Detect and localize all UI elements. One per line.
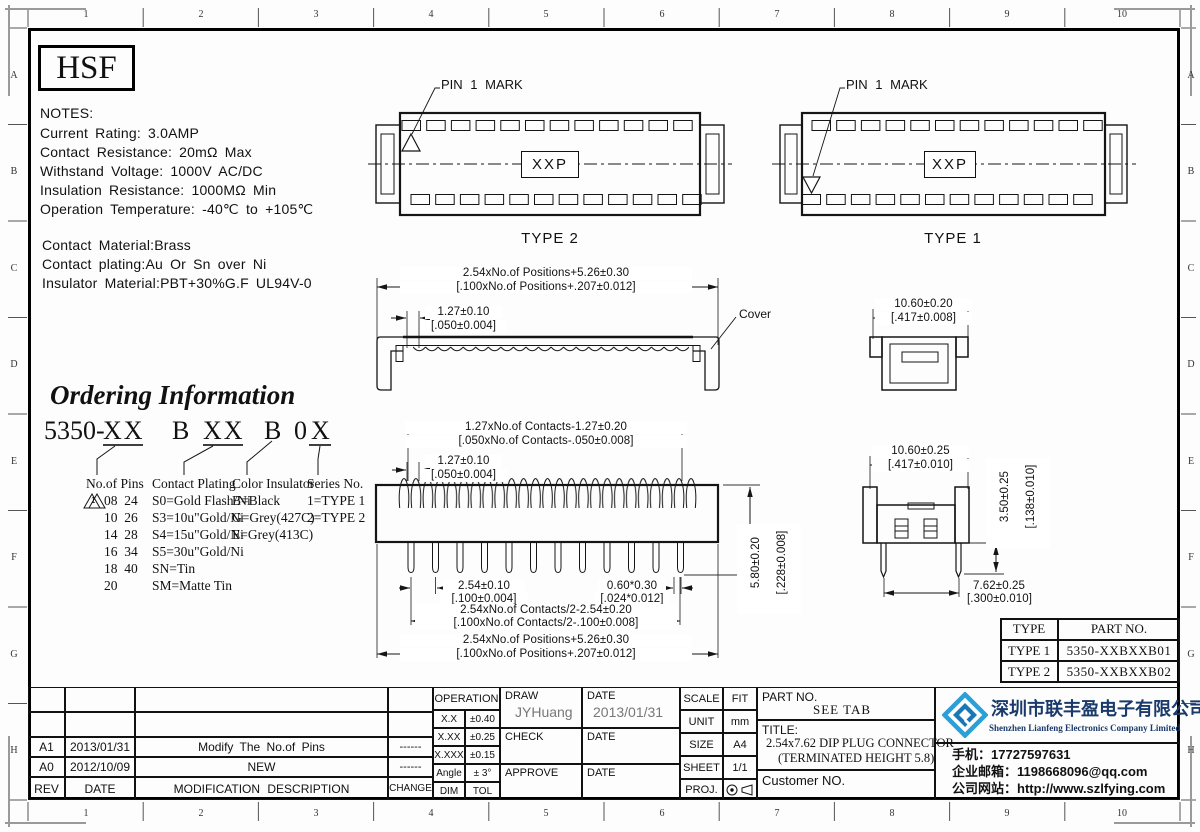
dim-cover-width-mm: 10.60±0.20 [875,298,972,311]
sheet-label: SHEET [680,756,723,779]
dim-total-in: [.100xNo.of Positions+.207±0.012] [400,648,692,661]
series-option: 2=TYPE 2 [307,510,365,525]
ruler-row-label: B [1180,166,1200,177]
partno-label: PART NO. [762,690,817,704]
part-code-seg-pins: XX [103,416,145,445]
company-name-en: Shenzhen Lianfeng Electronics Company Li… [989,723,1180,733]
dim-contacts-in: [.050xNo.of Contacts-.050±0.008] [405,435,687,448]
size-label: SIZE [680,733,723,756]
dim-height-mm: 5.80±0.20 [750,537,762,588]
ruler-col-label: 8 [881,9,903,20]
date-label: DATE [587,731,616,743]
dim-pitch-small-mm: 1.27±0.10 [425,455,502,468]
ruler-row-label: H [1180,745,1200,756]
unit-value: mm [723,710,757,733]
rev-date: 2012/10/09 [65,757,135,777]
company-name-cn: 深圳市联丰盈电子有限公司 [991,700,1200,720]
check-label: CHECK [505,731,544,743]
dim-contacts-mm: 1.27xNo.of Contacts-1.27±0.20 [405,421,687,434]
ruler-row-label: D [3,359,25,370]
ruler-row-label: A [1180,70,1200,81]
plating-option: S4=15u"Gold/Ni [152,527,244,542]
pins-option: 10 26 [104,510,138,525]
part-code-seg-color1: B [172,416,189,445]
ruler-col-label: 9 [996,9,1018,20]
dim-pitch-small-in: [.050±0.004] [420,469,507,482]
date-label: DATE [587,767,616,779]
dim-body-width-mm: 10.60±0.25 [872,445,969,458]
company-email: 企业邮箱：1198668096@qq.com [952,765,1147,780]
ruler-row-label: F [3,552,25,563]
date-label: DATE [587,690,616,702]
pins-option: 20 [104,578,118,593]
color-option: G=Grey(427C) [232,510,315,525]
ruler-col-label: 6 [651,808,673,819]
ordering-col-pins-header: No.of Pins [86,476,144,491]
hsf-logo: HSF [38,45,135,91]
note-line: Withstand Voltage: 1000V AC/DC [40,164,263,180]
ruler-col-label: 10 [1111,9,1133,20]
ruler-row-label: G [3,649,25,660]
tolerance-dim: X.X [433,710,465,728]
type-table-cell: TYPE 2 [1000,661,1058,683]
dim-body-height: 3.50±0.25 [.138±0.010] [986,458,1050,548]
color-option: B=Black [232,493,280,508]
check-cell: CHECK [500,728,582,764]
plating-option: S5=30u"Gold/Ni [152,544,244,559]
draw-date-value: 2013/01/31 [593,705,663,721]
tolerance-dim: Angle [433,764,465,782]
company-contact-cell: 手机：17727597631 企业邮箱：1198668096@qq.com 公司… [935,743,1180,800]
draw-label: DRAW [505,690,538,702]
ruler-col-label: 3 [305,9,327,20]
part-code-seg-series: X [311,416,330,445]
material-line: Contact Material:Brass [42,238,191,254]
approve-date-cell: DATE [582,764,680,800]
rev-cell-empty [388,712,433,737]
plating-option: SM=Matte Tin [152,578,232,593]
ordering-col-color-header: Color Insulator [232,476,314,491]
rev-description: Modify The No.of Pins [135,737,388,757]
customer-label: Customer NO. [762,773,845,788]
notes-title: NOTES: [40,106,93,122]
pin1-mark-label: PIN 1 MARK [441,78,523,93]
part-code-seg-zero: 0 [294,416,307,445]
dim-row-in: [.300±0.010] [966,593,1033,606]
color-option: E=Grey(413C) [232,527,313,542]
ruler-col-label: 4 [420,808,442,819]
projection-symbol-icon [725,783,755,797]
dim-body-height-in: [.138±0.010] [1025,465,1037,529]
company-header-cell: 深圳市联丰盈电子有限公司 Shenzhen Lianfeng Electroni… [935,687,1180,743]
ruler-col-label: 7 [766,808,788,819]
type1-caption: TYPE 1 [908,231,998,248]
ordering-col-plating-header: Contact Plating [152,476,236,491]
proj-label: PROJ. [680,779,723,800]
dim-pin-pitch-mm: 2.54±0.10 [443,580,525,593]
xxp-marking: XXP [521,151,579,178]
customer-cell: Customer NO. [757,770,935,800]
ruler-col-label: 3 [305,808,327,819]
note-line: Insulation Resistance: 1000MΩ Min [40,183,276,199]
tolerance-value: ±0.25 [465,728,500,746]
dim-positions-in: [.100xNo.of Positions+.207±0.012] [400,281,692,294]
type-table-cell: 5350-XXBXXB01 [1058,640,1180,661]
company-phone: 手机：17727597631 [952,748,1071,763]
tolerance-header: OPERATION [433,687,500,710]
ordering-title: Ordering Information [50,380,295,410]
rev-cell-empty [28,712,65,737]
ruler-col-label: 5 [535,9,557,20]
tolerance-value: ±0.15 [465,746,500,764]
rev-header-change: CHANGE [388,777,433,800]
plating-option: SN=Tin [152,561,195,576]
scale-label: SCALE [680,687,723,710]
material-line: Insulator Material:PBT+30%G.F UL94V-0 [42,276,312,292]
rev-cell-empty [135,712,388,737]
revision-flag: 1 [91,497,95,506]
rev-date: 2013/01/31 [65,737,135,757]
ruler-col-label: 9 [996,808,1018,819]
pins-option: 16 34 [104,544,138,559]
title-line1: 2.54x7.62 DIP PLUG CONNECTOR [766,736,954,750]
ruler-col-label: 2 [190,808,212,819]
ruler-col-label: 7 [766,9,788,20]
tolerance-dim: X.XX [433,728,465,746]
rev-cell-empty [65,687,135,712]
ruler-row-label: C [3,263,25,274]
type-table-cell: TYPE 1 [1000,640,1058,661]
dim-pitch-small-mm: 1.27±0.10 [425,306,502,319]
dim-half-mm: 2.54xNo.of Contacts/2-2.54±0.20 [415,604,677,617]
title-line2: (TERMINATED HEIGHT 5.8) [778,751,934,765]
proj-value [723,779,757,800]
dim-row-mm: 7.62±0.25 [972,580,1026,593]
dim-cover-width-in: [.417±0.008] [875,312,972,325]
dim-height: 5.80±0.20 [.228±0.008] [737,524,801,614]
rev-description: NEW [135,757,388,777]
note-line: Contact Resistance: 20mΩ Max [40,145,252,161]
note-line: Operation Temperature: -40℃ to +105℃ [40,202,313,218]
size-value: A4 [723,733,757,756]
unit-label: UNIT [680,710,723,733]
approve-cell: APPROVE [500,764,582,800]
rev-id: A1 [28,737,65,757]
tolerance-value: ± 3° [465,764,500,782]
dim-pin-width-mm: 0.60*0.30 [598,580,666,593]
rev-change: ------ [388,737,433,757]
rev-cell-empty [135,687,388,712]
part-code-prefix: 5350- [44,416,105,445]
draw-date-cell: DATE 2013/01/31 [582,687,680,728]
dim-total-mm: 2.54xNo.of Positions+5.26±0.30 [400,634,692,647]
plating-option: S3=10u"Gold/Ni [152,510,244,525]
type-table-header-type: TYPE [1000,618,1058,640]
series-option: 1=TYPE 1 [307,493,365,508]
ruler-col-label: 8 [881,808,903,819]
partno-value: SEE TAB [813,703,871,718]
rev-cell-empty [65,712,135,737]
scale-value: FIT [723,687,757,710]
engineering-drawing-sheet: 1 2 3 4 5 6 7 8 9 10 1 2 3 4 5 6 7 8 9 1… [0,0,1200,832]
rev-change: ------ [388,757,433,777]
ruler-col-label: 1 [75,808,97,819]
part-code-seg-plating: XX [203,416,245,445]
pins-option: 14 28 [104,527,138,542]
company-logo-icon [942,692,988,738]
xxp-marking: XXP [924,151,976,178]
ruler-col-label: 1 [75,9,97,20]
note-line: Current Rating: 3.0AMP [40,126,199,142]
ruler-col-label: 6 [651,9,673,20]
tolerance-dim: X.XXX [433,746,465,764]
tolerance-dim-header: DIM [433,782,465,800]
draw-cell: DRAW JYHuang [500,687,582,728]
ruler-col-label: 10 [1111,808,1133,819]
part-code-seg-color2: B [264,416,281,445]
ruler-col-label: 2 [190,9,212,20]
pins-option: 18 40 [104,561,138,576]
ruler-row-label: A [3,70,25,81]
draw-signature: JYHuang [515,705,573,721]
ordering-col-series-header: Series No. [307,476,363,491]
dim-half-in: [.100xNo.of Contacts/2-.100±0.008] [415,617,677,630]
ruler-row-label: G [1180,649,1200,660]
pins-option: 08 24 [104,493,138,508]
dim-pitch-small-in: [.050±0.004] [420,320,507,333]
dim-body-width-in: [.417±0.010] [872,459,969,472]
ruler-row-label: H [3,745,25,756]
type-table-header-partno: PART NO. [1058,618,1180,640]
ruler-col-label: 5 [535,808,557,819]
rev-header-description: MODIFICATION DESCRIPTION [135,777,388,800]
sheet-value: 1/1 [723,756,757,779]
rev-header-date: DATE [65,777,135,800]
type2-caption: TYPE 2 [505,231,595,248]
title-label: TITLE: [762,723,798,737]
ruler-row-label: B [3,166,25,177]
cover-callout: Cover [739,308,771,321]
ruler-row-label: F [1180,552,1200,563]
approve-label: APPROVE [505,767,558,779]
company-website: 公司网站：http://www.szlfying.com [952,782,1165,797]
dim-positions-mm: 2.54xNo.of Positions+5.26±0.30 [400,267,692,280]
material-line: Contact plating:Au Or Sn over Ni [42,257,267,273]
title-cell: TITLE: 2.54x7.62 DIP PLUG CONNECTOR (TER… [757,720,935,770]
pin1-mark-label: PIN 1 MARK [846,78,928,93]
ruler-row-label: E [1180,456,1200,467]
ruler-row-label: D [1180,359,1200,370]
ruler-row-label: E [3,456,25,467]
check-date-cell: DATE [582,728,680,764]
tolerance-value: ±0.40 [465,710,500,728]
rev-header-rev: REV [28,777,65,800]
rev-cell-empty [388,687,433,712]
partno-cell: PART NO. SEE TAB [757,687,935,720]
dim-body-height-mm: 3.50±0.25 [999,471,1011,522]
dim-height-in: [.228±0.008] [776,531,788,595]
type-table-cell: 5350-XXBXXB02 [1058,661,1180,683]
ruler-row-label: C [1180,263,1200,274]
ruler-col-label: 4 [420,9,442,20]
rev-id: A0 [28,757,65,777]
tolerance-tol-header: TOL [465,782,500,800]
rev-cell-empty [28,687,65,712]
